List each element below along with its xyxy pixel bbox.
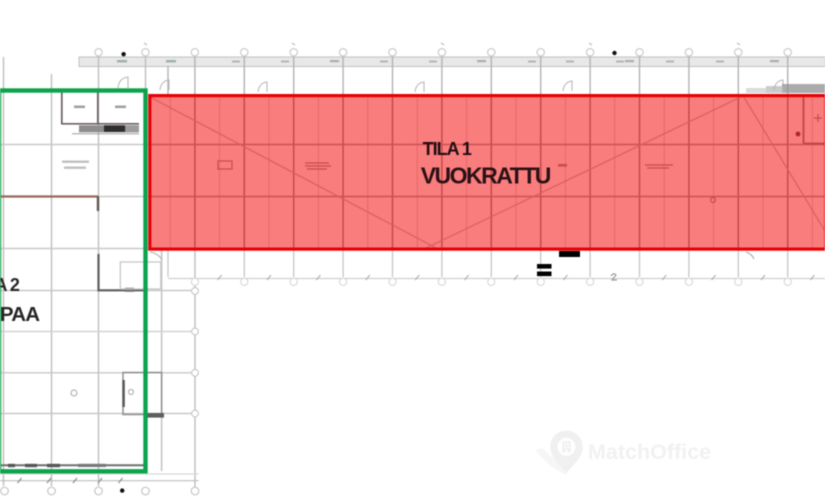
svg-text:MatchOffice: MatchOffice	[588, 440, 711, 464]
svg-text:TILA 1: TILA 1	[423, 139, 472, 159]
svg-text:VUOKRATTU: VUOKRATTU	[421, 163, 551, 189]
svg-text:TILA 2: TILA 2	[0, 275, 20, 295]
svg-text:VAPAA: VAPAA	[0, 303, 40, 326]
